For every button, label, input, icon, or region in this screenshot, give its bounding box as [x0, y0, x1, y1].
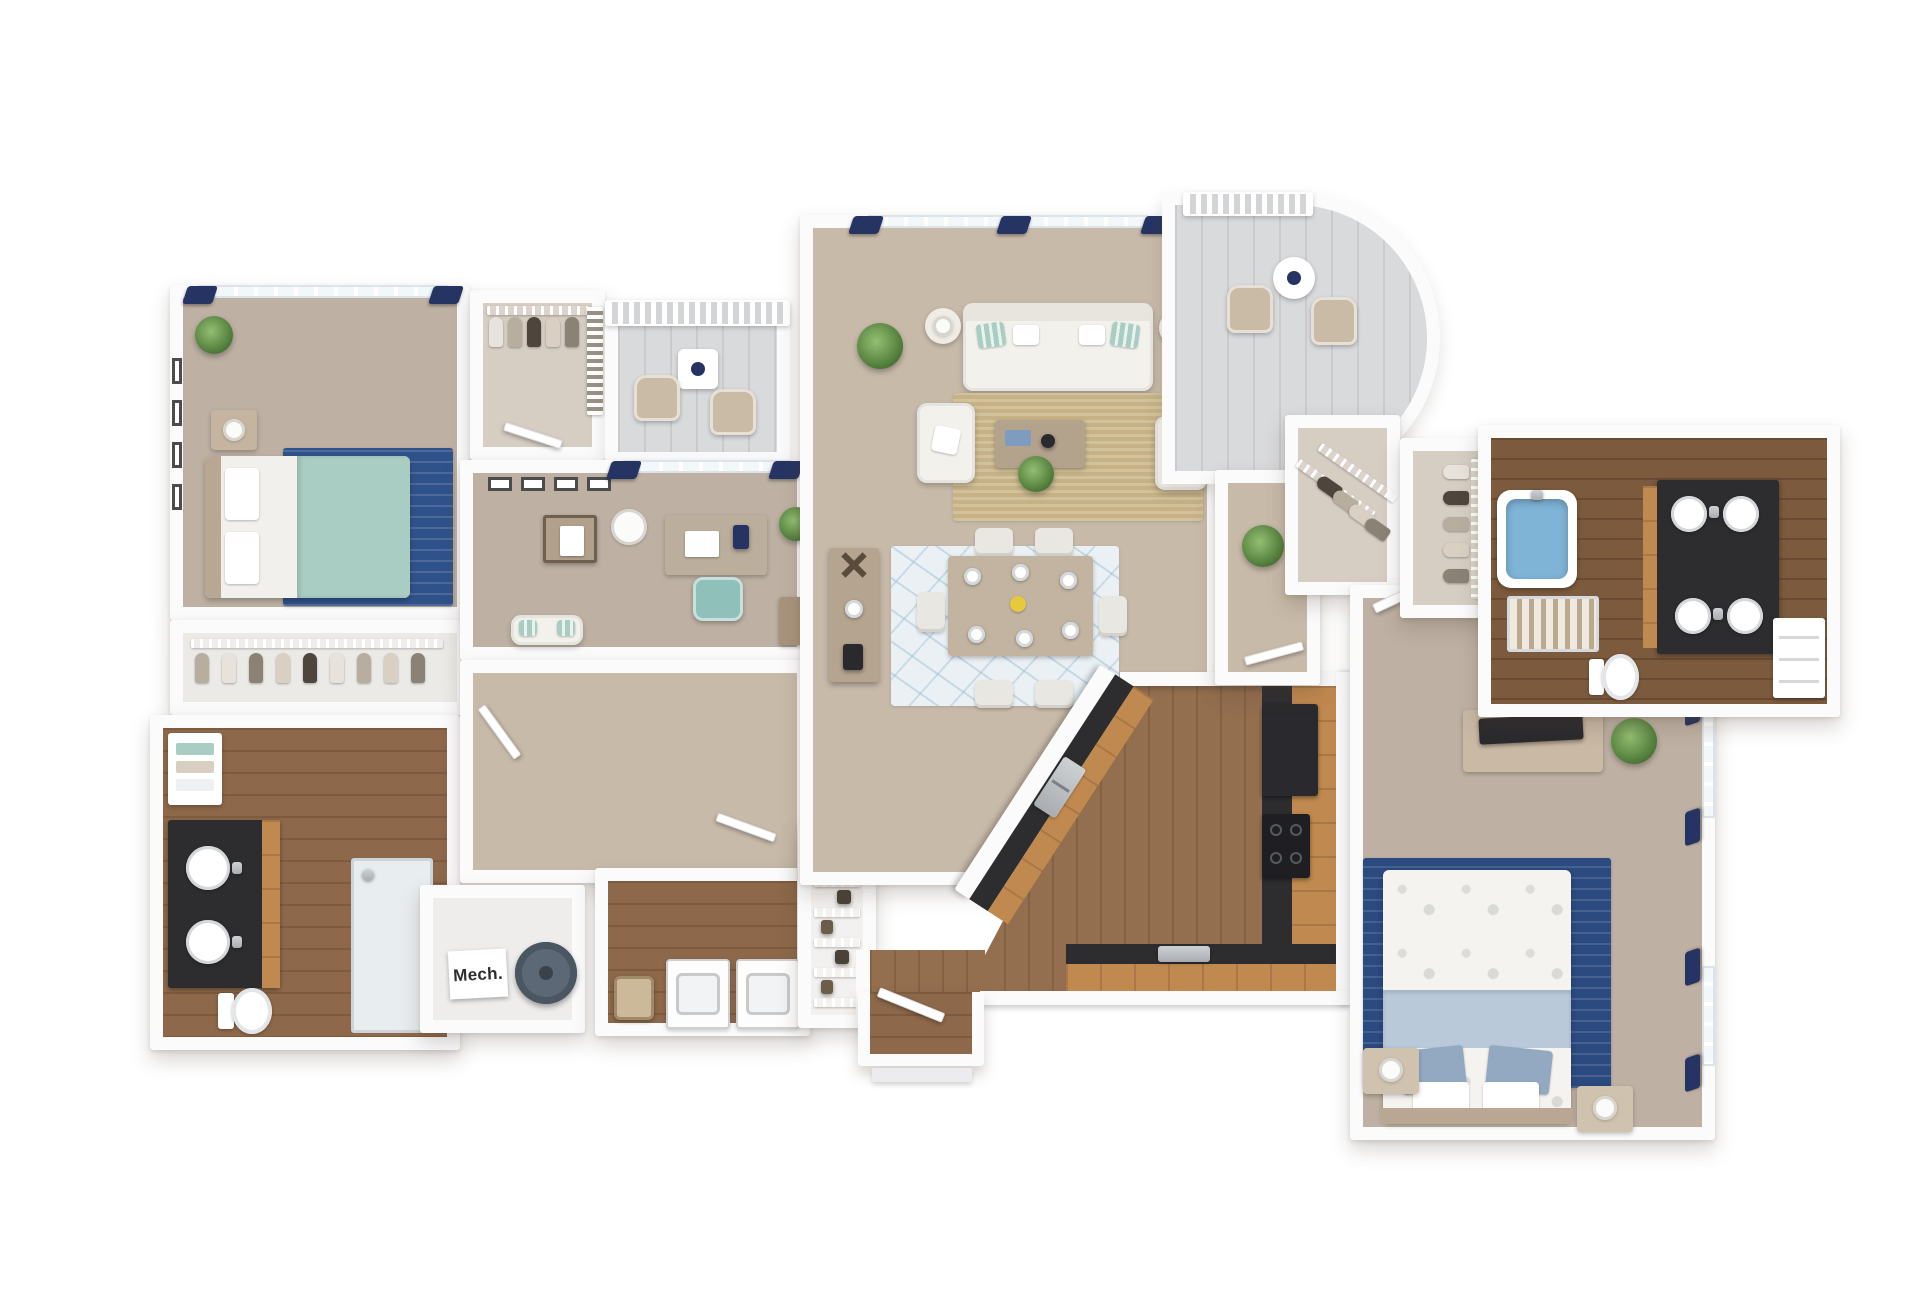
wall-frame	[587, 477, 611, 491]
hanging-clothes	[527, 317, 541, 347]
room-master-bathroom	[1478, 425, 1840, 717]
bed	[205, 456, 410, 598]
armchair	[917, 403, 975, 483]
magazine	[560, 526, 584, 556]
toilet	[1589, 652, 1639, 702]
door	[478, 704, 522, 759]
sofa-back	[963, 303, 1153, 321]
books	[1005, 430, 1031, 446]
room-balcony-1	[605, 300, 790, 465]
window	[198, 285, 448, 298]
side-table-lamp	[925, 308, 961, 344]
patio-chair	[634, 375, 680, 421]
room-kitchen	[870, 672, 1350, 1018]
burner	[1290, 852, 1302, 864]
linen-shelf	[168, 733, 222, 805]
room-bedroom-2	[170, 285, 470, 620]
hanging-clothes	[1362, 516, 1391, 542]
stored-goods	[837, 890, 851, 904]
kitchen-counter-bottom	[1066, 944, 1336, 991]
front-door	[877, 987, 946, 1022]
nightstand	[1577, 1086, 1633, 1132]
pillow	[931, 425, 962, 456]
plate	[845, 600, 863, 618]
stored-goods	[821, 920, 833, 934]
cabinets	[1066, 964, 1336, 991]
wall	[980, 991, 1350, 1005]
wire-shelf	[814, 998, 860, 1007]
room-laundry	[595, 868, 810, 1036]
place-setting	[1016, 630, 1033, 647]
hanging-clothes	[384, 653, 398, 683]
hanging-clothes	[1443, 465, 1469, 479]
duvet-teal	[297, 456, 410, 598]
range-cooktop	[1262, 814, 1310, 878]
hanging-clothes	[546, 317, 560, 347]
coffee-maker	[843, 644, 863, 670]
vase	[1041, 434, 1055, 448]
sink	[1671, 496, 1707, 532]
room-walkin-closet-1	[470, 290, 605, 460]
headboard	[1379, 1108, 1575, 1124]
faucet	[1709, 506, 1719, 518]
mech-room-label: Mech.	[448, 949, 508, 1000]
decor	[1287, 271, 1301, 285]
pillow-teal	[519, 620, 537, 636]
hanging-clothes	[303, 653, 317, 683]
dining-table	[948, 556, 1093, 656]
dining-chair	[917, 592, 945, 632]
floor-plan-3d: Mech.	[0, 0, 1908, 1303]
curtain-navy	[606, 461, 642, 479]
side-table	[543, 515, 597, 563]
hanging-clothes	[276, 653, 290, 683]
towel	[176, 779, 214, 791]
washer-door	[676, 973, 719, 1015]
pillow-teal	[557, 620, 575, 636]
pillow-teal	[975, 321, 1006, 349]
shower-mat	[1507, 596, 1599, 652]
room-hallway	[460, 660, 810, 883]
toilet	[218, 986, 272, 1036]
storage-rack	[587, 307, 603, 415]
room-closet-bedroom2	[170, 620, 470, 715]
bar-console	[829, 548, 879, 682]
room-hall-bathroom	[150, 715, 460, 1050]
refrigerator	[1262, 704, 1318, 796]
place-setting	[1062, 622, 1079, 639]
window	[623, 460, 791, 473]
entry-step	[872, 1068, 972, 1082]
towel	[176, 743, 214, 755]
wall-frame	[488, 477, 512, 491]
wire-shelf	[191, 639, 443, 648]
wall	[1336, 672, 1350, 1005]
sink	[1723, 496, 1759, 532]
wire-shelf	[814, 968, 860, 977]
vanity-double	[168, 820, 280, 988]
hanging-clothes	[330, 653, 344, 683]
place-setting	[968, 626, 985, 643]
faucet	[232, 936, 242, 948]
tub-basin	[1506, 499, 1568, 579]
pillow-teal	[1109, 321, 1140, 349]
laundry-basket	[614, 976, 654, 1020]
hanging-clothes	[249, 653, 263, 683]
hanging-clothes	[222, 653, 236, 683]
door	[1244, 641, 1304, 665]
hanging-clothes	[489, 317, 503, 347]
dining-chair	[975, 528, 1013, 556]
linen-closet	[1773, 618, 1825, 698]
lamp	[1593, 1096, 1617, 1120]
patio-chair	[1311, 297, 1357, 345]
curtain-navy	[848, 216, 884, 234]
place-setting	[964, 568, 981, 585]
room-entry	[858, 992, 984, 1066]
patio-chair	[710, 389, 756, 435]
vanity-cabinet	[262, 820, 280, 988]
flower-centerpiece	[1010, 596, 1026, 612]
headboard	[205, 456, 221, 598]
burner	[1270, 852, 1282, 864]
patio-chair	[1227, 285, 1273, 333]
dryer	[736, 959, 800, 1029]
plant	[195, 316, 233, 354]
window	[1702, 706, 1715, 818]
dining-chair	[1099, 596, 1127, 636]
wire-shelf	[814, 908, 860, 917]
lamp	[223, 419, 245, 441]
vanity-cabinet	[1643, 486, 1657, 648]
patio-table	[678, 349, 718, 389]
hanging-clothes	[411, 653, 425, 683]
plant	[1018, 456, 1054, 492]
curtain-navy	[996, 216, 1032, 234]
curtain-navy	[1685, 948, 1700, 987]
sofa	[963, 303, 1153, 391]
tub-faucet	[1531, 490, 1543, 500]
shower-head	[362, 869, 374, 881]
desk	[665, 515, 767, 575]
dryer-door	[746, 973, 789, 1015]
room-mech: Mech.	[420, 885, 585, 1033]
curtain-navy	[768, 461, 804, 479]
wall-frame	[172, 358, 182, 384]
faucet	[232, 862, 242, 874]
sink	[186, 920, 230, 964]
room-walkin-closet-2	[1285, 415, 1400, 595]
pillow	[1079, 325, 1105, 345]
burner	[1270, 824, 1282, 836]
hanging-clothes	[1443, 517, 1469, 531]
palm-plant	[857, 323, 903, 369]
burner	[1290, 824, 1302, 836]
plant	[1242, 525, 1284, 567]
wall-frame	[172, 400, 182, 426]
room-den-office	[460, 460, 810, 660]
curtain-navy	[1685, 808, 1700, 847]
sink-divider	[1051, 779, 1069, 792]
plant	[1611, 718, 1657, 764]
shelf	[1779, 680, 1819, 683]
decor	[691, 362, 705, 376]
office-chair-teal	[693, 577, 743, 621]
place-setting	[1012, 564, 1029, 581]
washer	[666, 959, 730, 1029]
lamp	[933, 316, 953, 336]
sink	[1675, 598, 1711, 634]
stored-goods	[835, 950, 849, 964]
nightstand	[211, 410, 257, 450]
door	[503, 422, 563, 449]
tv	[1478, 713, 1583, 744]
double-vanity	[1657, 480, 1779, 654]
tablet	[733, 525, 749, 549]
loveseat	[511, 615, 583, 645]
curtain-navy	[428, 286, 464, 304]
pillow	[225, 532, 259, 584]
wall-frame	[521, 477, 545, 491]
throw-blanket	[1383, 990, 1571, 1048]
curtain-navy	[182, 286, 218, 304]
faucet	[1713, 608, 1723, 620]
wall-frame	[554, 477, 578, 491]
water-heater-cap	[539, 966, 553, 980]
soaking-tub	[1497, 490, 1577, 588]
wire-shelf	[814, 938, 860, 947]
place-setting	[1060, 572, 1077, 589]
water-heater	[515, 942, 577, 1004]
sink	[186, 846, 230, 890]
toaster	[1158, 946, 1210, 962]
pillow	[1013, 325, 1039, 345]
hanging-clothes	[195, 653, 209, 683]
nightstand	[1363, 1048, 1419, 1094]
shelf	[1779, 658, 1819, 661]
sink	[1727, 598, 1763, 634]
door	[715, 813, 776, 843]
toilet-bowl	[232, 988, 272, 1034]
window	[1702, 966, 1715, 1066]
railing	[605, 300, 790, 326]
floor-lamp	[611, 509, 647, 545]
hanging-clothes	[357, 653, 371, 683]
hanging-clothes	[508, 317, 522, 347]
hanging-clothes	[1443, 543, 1469, 557]
wall-frame	[172, 442, 182, 468]
hanging-clothes	[1443, 491, 1469, 505]
shelf	[1779, 636, 1819, 639]
toilet-bowl	[1602, 654, 1639, 700]
dresser	[1463, 710, 1603, 772]
stored-goods	[821, 980, 833, 994]
open-book	[685, 531, 719, 557]
towel	[176, 761, 214, 773]
curtain-navy	[1685, 1054, 1700, 1093]
hanging-clothes	[565, 317, 579, 347]
dining-chair	[1035, 528, 1073, 556]
pillow	[225, 468, 259, 520]
lamp	[1379, 1058, 1403, 1082]
railing	[1183, 192, 1313, 216]
wall-frame	[172, 484, 182, 510]
hanging-clothes	[1443, 569, 1469, 583]
patio-table-round	[1273, 257, 1315, 299]
wire-shelf	[487, 306, 589, 315]
